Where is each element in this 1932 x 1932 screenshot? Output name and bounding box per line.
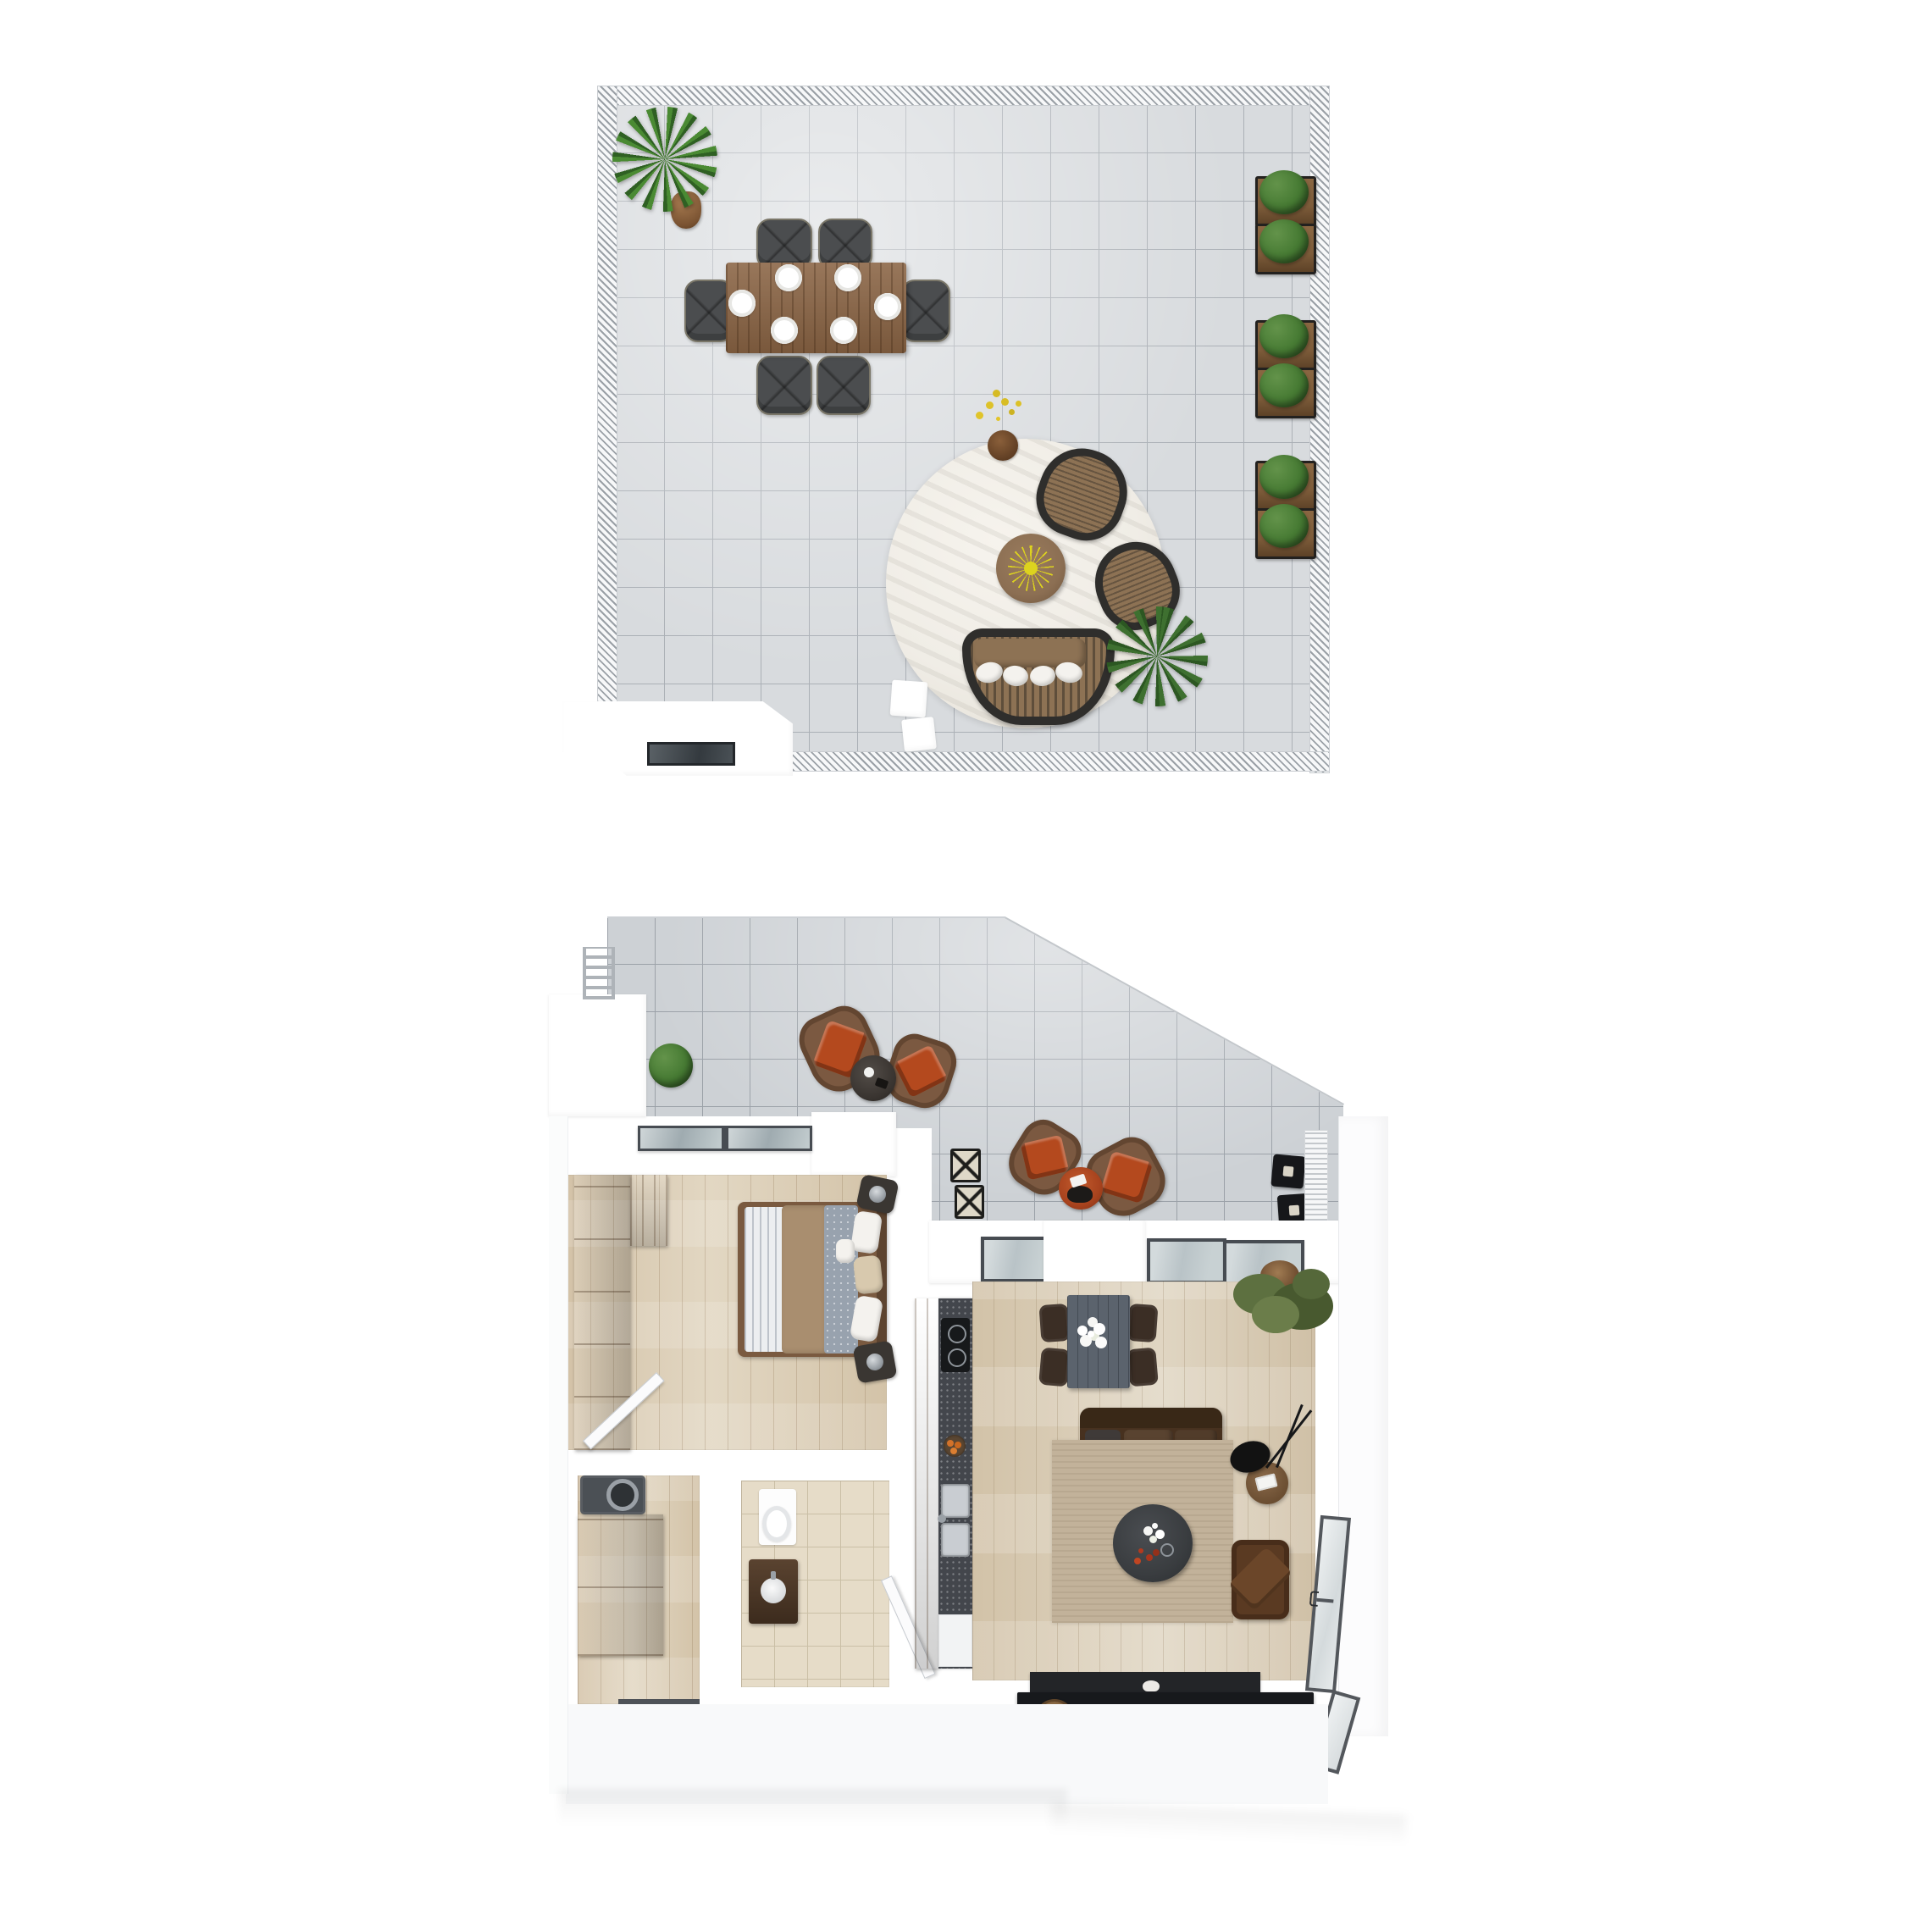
planter-box <box>1255 508 1316 559</box>
bottom-shadow <box>559 1789 1067 1826</box>
place-setting <box>874 293 901 320</box>
dining-chair-small <box>1038 1348 1071 1387</box>
bush-plant <box>649 1044 693 1088</box>
hall-cabinet <box>578 1514 663 1656</box>
kitchen-cabinets <box>915 1298 938 1669</box>
parapet-wall <box>549 994 646 1116</box>
stair-bulkhead <box>562 701 793 776</box>
dining-chair-small <box>1127 1304 1159 1342</box>
place-setting <box>775 264 802 291</box>
wall-block <box>811 1112 896 1176</box>
roof-ladder <box>583 947 615 999</box>
floor-plan-render <box>0 0 1932 1932</box>
dining-chair <box>818 219 872 269</box>
flower-sprigs <box>996 417 1000 421</box>
flower-pot <box>988 430 1018 461</box>
planter-box <box>1255 368 1316 418</box>
railing-left <box>597 86 617 716</box>
cube-stool <box>901 717 937 752</box>
cube-stool <box>890 680 928 718</box>
bottom-shadow-right <box>1049 1803 1406 1846</box>
plant-foliage <box>612 107 717 212</box>
terrace-side-table <box>850 1055 896 1101</box>
bedroom-skylight <box>638 1126 812 1151</box>
kitchen-sink <box>941 1484 970 1558</box>
bed-pillow <box>853 1254 883 1294</box>
x-stool <box>950 1149 981 1182</box>
terrace-side-table <box>1059 1167 1103 1210</box>
potted-tree <box>1226 1252 1345 1345</box>
place-setting <box>771 317 798 344</box>
planter-box <box>1255 224 1316 274</box>
nightstand <box>853 1340 898 1383</box>
flower-bouquet <box>1088 1331 1094 1337</box>
bulkhead-skylight <box>647 742 735 766</box>
vanity-sink <box>749 1559 798 1624</box>
dining-chair <box>817 356 871 415</box>
x-stool <box>955 1185 984 1219</box>
living-skylight <box>1147 1238 1226 1284</box>
shell-decor <box>1143 1680 1160 1691</box>
place-setting <box>728 290 756 317</box>
sofa-pillow <box>1029 664 1056 687</box>
fruit-bowl <box>944 1435 966 1457</box>
bed-throw <box>836 1239 855 1263</box>
toilet <box>759 1489 796 1545</box>
armchair-living <box>1232 1540 1289 1619</box>
terrace-top-edge <box>607 911 1005 918</box>
coffee-table-round <box>1113 1504 1193 1582</box>
railing-top <box>597 86 1328 106</box>
living-dining-table <box>1067 1295 1130 1388</box>
sofa-pillow <box>1001 664 1029 688</box>
dining-chair <box>756 356 812 415</box>
louver-grate <box>1304 1130 1328 1232</box>
wardrobe-upper <box>630 1175 667 1246</box>
palm-plant <box>1106 606 1208 706</box>
right-wall <box>1338 1116 1388 1736</box>
cooktop <box>941 1318 970 1372</box>
dining-chair <box>756 219 812 269</box>
dining-chair <box>901 280 950 342</box>
dining-chair-small <box>1127 1348 1159 1387</box>
round-coffee-table <box>996 534 1066 603</box>
place-setting <box>834 264 861 291</box>
left-outer-wall <box>549 1116 568 1794</box>
railing-bottom <box>780 751 1330 772</box>
washing-machine <box>580 1475 645 1514</box>
place-setting <box>830 317 857 344</box>
lantern-planter <box>1270 1154 1305 1188</box>
dining-chair-small <box>1039 1304 1071 1342</box>
appliance-front <box>938 1614 972 1667</box>
double-bed <box>738 1202 887 1357</box>
